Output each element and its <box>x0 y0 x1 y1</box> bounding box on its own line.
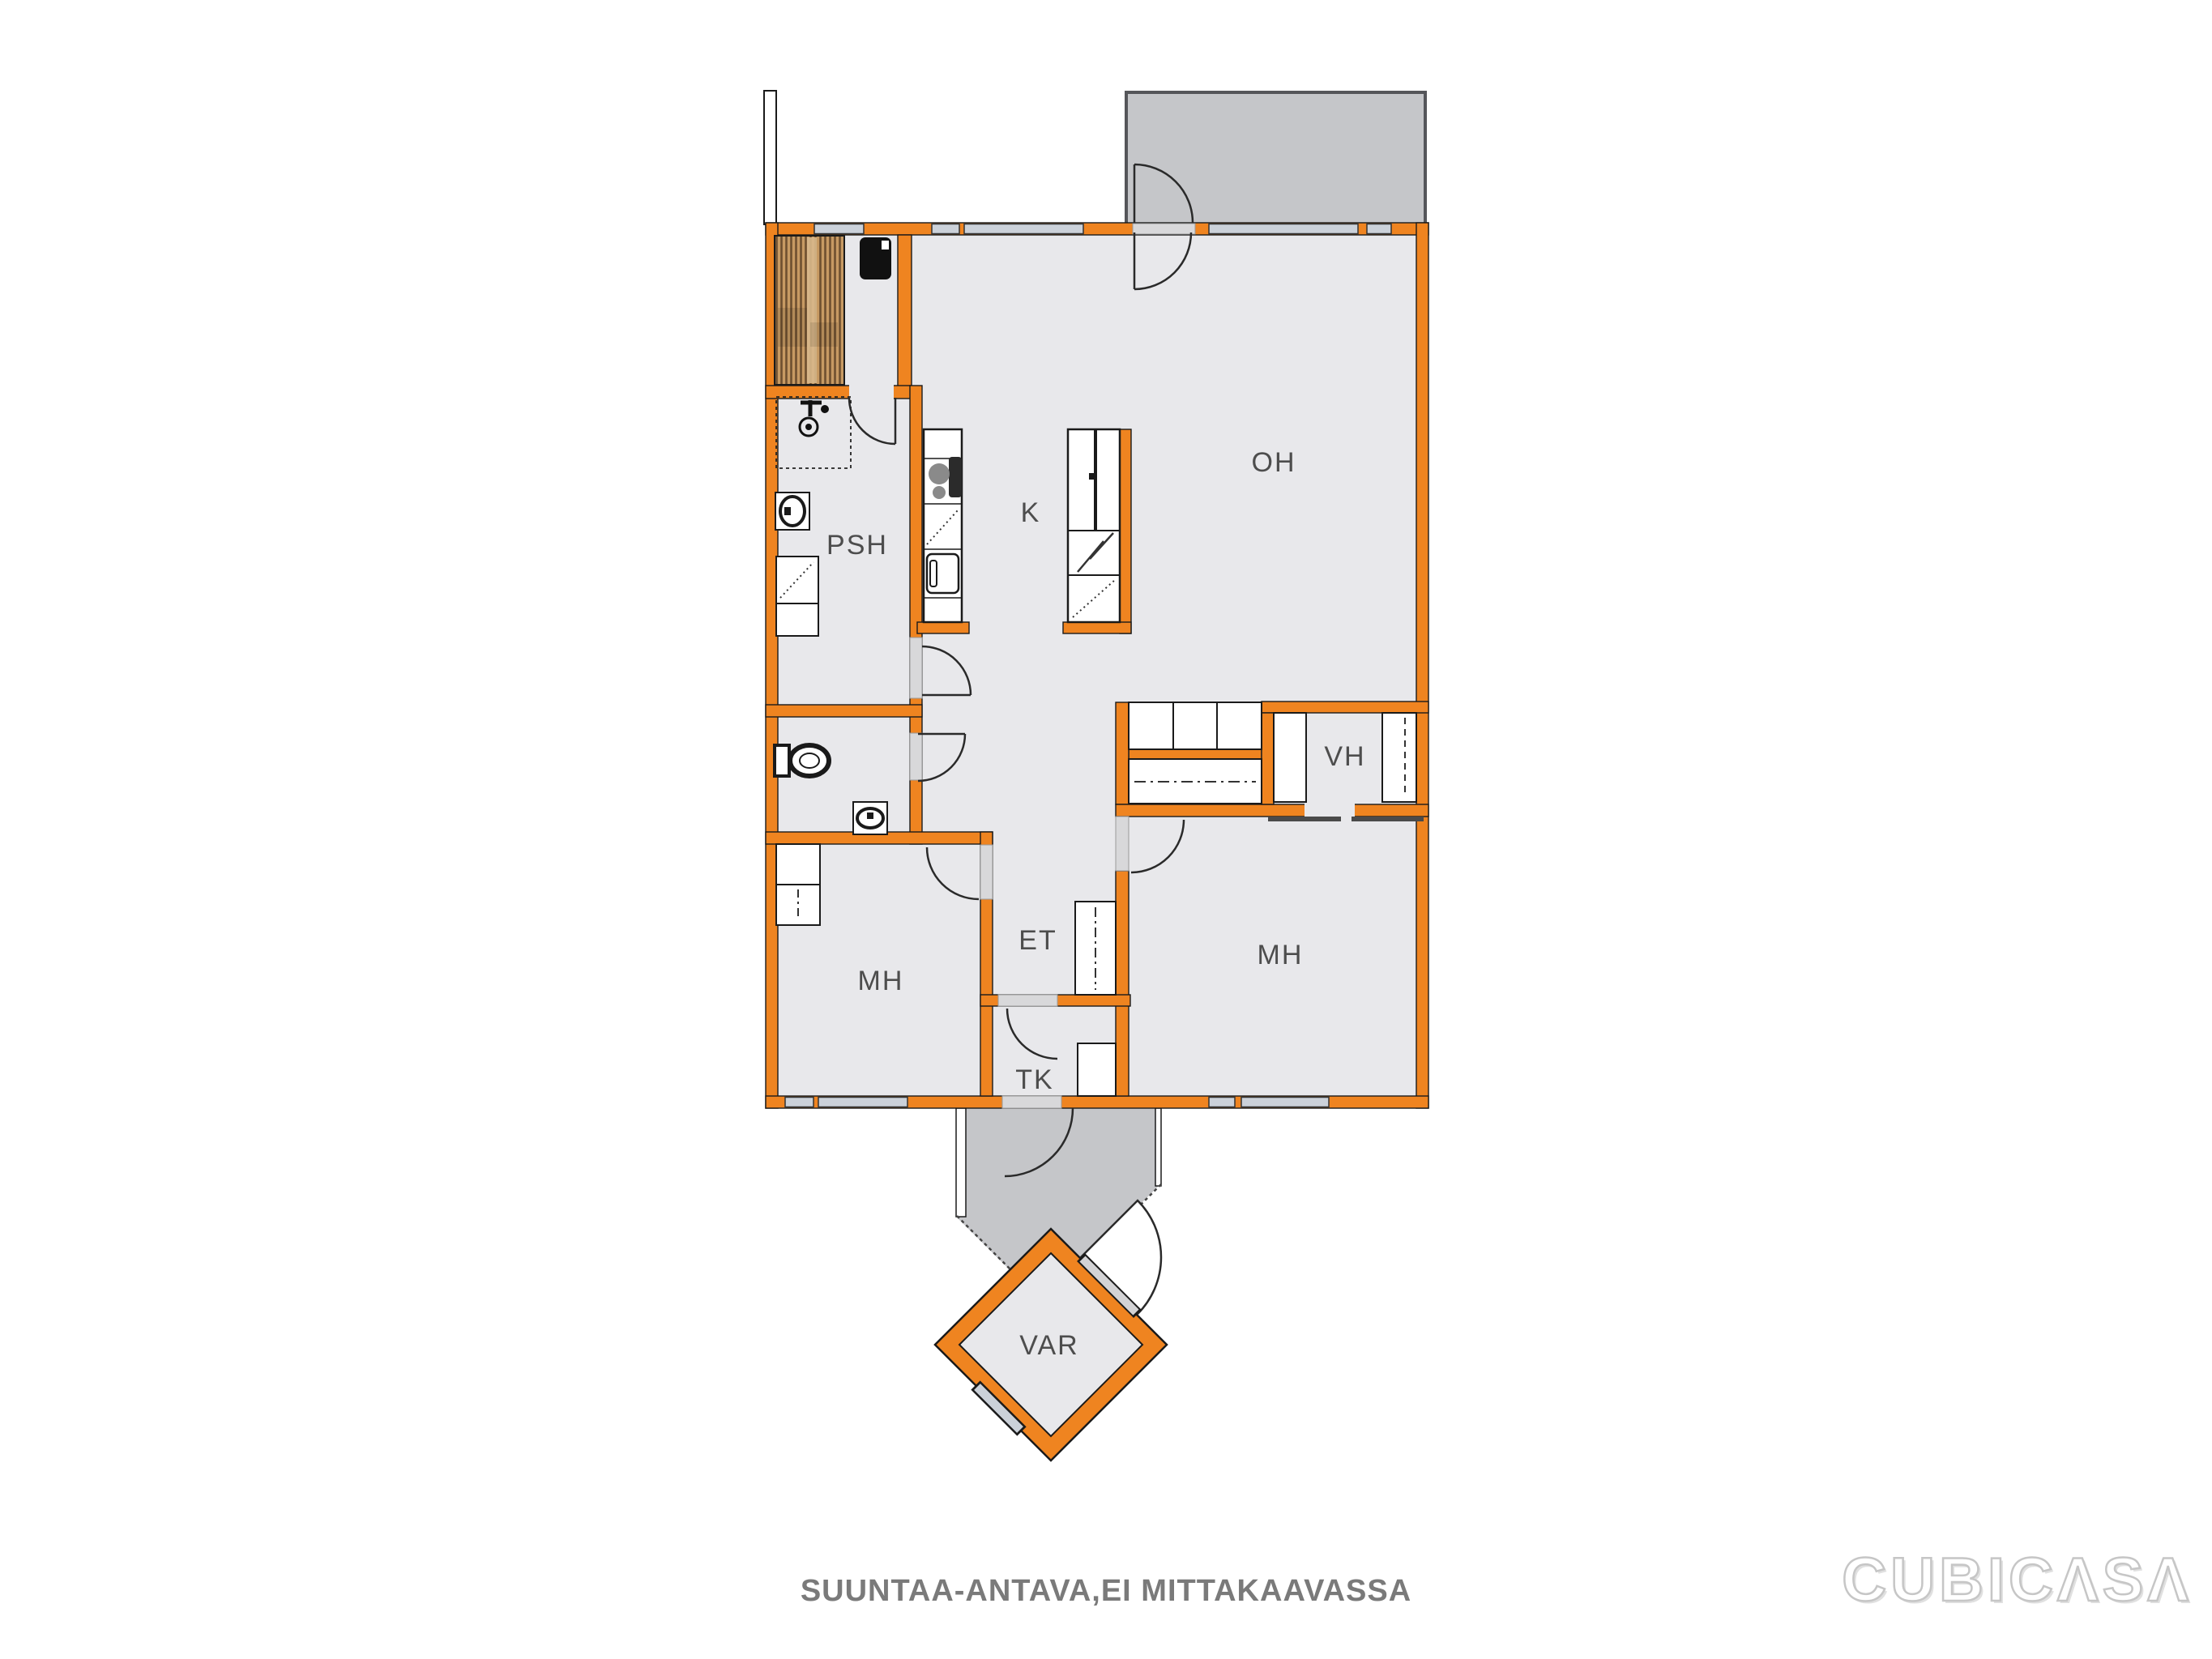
wall-vh-top <box>1262 702 1428 713</box>
wc-sink-icon <box>853 802 887 834</box>
threshold-mhright-door <box>1116 817 1129 871</box>
mh-wardrobe <box>1129 759 1262 804</box>
wall-psh-wc <box>766 705 922 717</box>
opening-sauna-door <box>849 384 894 399</box>
room-label-mh-right: MH <box>1258 940 1304 970</box>
wall-counter-cap-right <box>1063 622 1131 633</box>
window-bottom-4 <box>1241 1098 1329 1107</box>
wall-mhright-left <box>1116 871 1129 1096</box>
threshold-tk-door <box>998 995 1057 1006</box>
window-bottom-3 <box>1209 1098 1235 1107</box>
cubicasa-watermark: CUBICΛSΛ CUBICΛSΛ <box>1842 1546 2195 1617</box>
window-top-5 <box>1367 224 1391 234</box>
watermark-text: CUBICΛSΛ <box>1842 1546 2193 1614</box>
psh-sink-icon <box>775 493 809 530</box>
wall-vh-left <box>1262 713 1274 804</box>
oven-icon <box>927 554 959 593</box>
wall-vh-bottom <box>1116 804 1428 817</box>
room-label-vh: VH <box>1324 741 1365 772</box>
opening-vh-door <box>1305 804 1355 817</box>
threshold-entry-door <box>1002 1096 1061 1108</box>
threshold-wc-door <box>910 733 922 780</box>
threshold-psh-door <box>910 638 922 698</box>
oh-closet <box>1129 702 1262 749</box>
window-top-3 <box>964 224 1083 234</box>
washing-machine-icon <box>776 557 818 636</box>
sauna-stove-icon <box>860 237 891 279</box>
porch-railing-right <box>1155 1108 1161 1186</box>
mhleft-closet-1 <box>776 844 820 885</box>
toilet-icon <box>775 745 829 776</box>
window-bottom-1 <box>785 1098 813 1107</box>
floorplan-page: OH K PSH VH MH MH ET TK VAR SUUNTAA-ANTA… <box>0 0 2212 1659</box>
room-label-psh: PSH <box>826 530 888 561</box>
wall-hall-closet-upper <box>1116 702 1129 804</box>
window-top-4 <box>1209 224 1358 234</box>
threshold-balcony-door <box>1133 224 1195 234</box>
room-label-var: VAR <box>1019 1330 1078 1361</box>
tk-cupboard <box>1078 1043 1116 1096</box>
vh-shelf-right <box>1382 713 1416 802</box>
room-label-et: ET <box>1018 925 1057 956</box>
room-label-oh: OH <box>1252 447 1296 478</box>
window-bottom-2 <box>818 1098 907 1107</box>
room-label-mh-left: MH <box>858 966 904 996</box>
room-label-k: K <box>1021 497 1041 528</box>
wall-right <box>1416 223 1428 1108</box>
yard-fence <box>764 91 776 224</box>
wall-peninsula <box>1120 429 1131 633</box>
window-top-1 <box>814 224 864 234</box>
room-label-tk: TK <box>1015 1064 1053 1095</box>
wall-counter-cap-left <box>917 622 969 633</box>
window-top-2 <box>932 224 959 234</box>
balcony <box>1125 91 1427 224</box>
disclaimer-caption: SUUNTAA-ANTAVA,EI MITTAKAAVASSA <box>801 1574 1411 1608</box>
porch-railing-left <box>956 1108 966 1217</box>
floorplan-canvas: OH K PSH VH MH MH ET TK VAR SUUNTAA-ANTA… <box>0 0 2212 1659</box>
wall-closet-band <box>1129 749 1262 759</box>
vh-shelf-left <box>1274 713 1306 802</box>
threshold-mhleft-door <box>980 845 993 899</box>
wall-sauna-right <box>898 235 912 397</box>
